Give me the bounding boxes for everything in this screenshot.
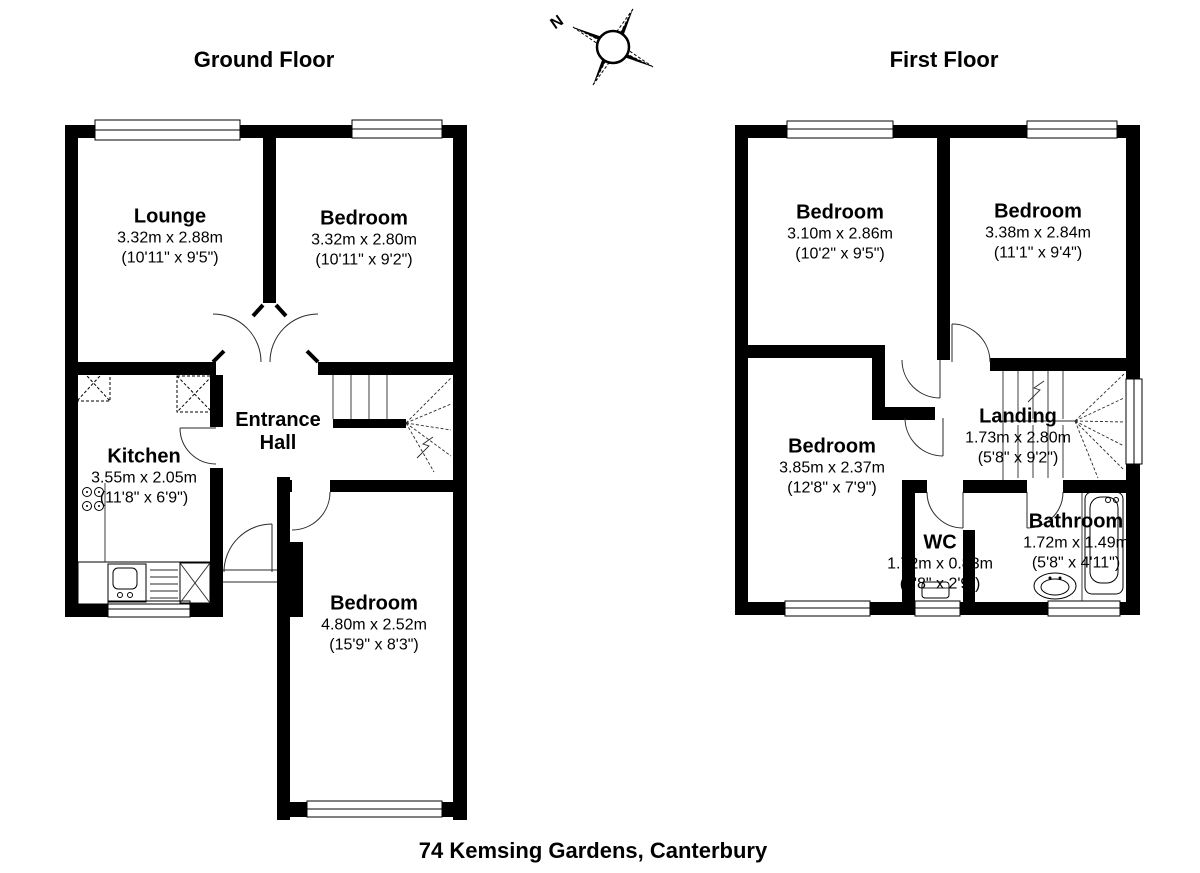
property-address: 74 Kemsing Gardens, Canterbury (419, 838, 767, 864)
ground-floor-title: Ground Floor (194, 47, 335, 73)
room-label-entrance-hall: Entrance Hall (228, 409, 328, 455)
kitchen-sink (108, 564, 146, 602)
room-label-kitchen: Kitchen 3.55m x 2.05m (11'8" x 6'9") (91, 446, 197, 509)
stairs-up-arrow (417, 437, 433, 458)
right-bedroom-window (1027, 121, 1117, 138)
kitchen-window (108, 601, 190, 617)
back-bedroom-window (785, 601, 870, 616)
room-label-bedroom-back: Bedroom 3.85m x 2.37m (12'8" x 7'9") (779, 436, 885, 499)
compass-rose: N (548, 9, 653, 85)
room-label-bedroom-left: Bedroom 3.10m x 2.86m (10'2" x 9'5") (787, 202, 893, 265)
kitchen-appliance-right (177, 376, 212, 412)
first-floor-title: First Floor (890, 47, 999, 73)
room-label-wc: WC 1.72m x 0.83m (5'8" x 2'9") (887, 532, 993, 595)
room-label-bedroom-rear: Bedroom 4.80m x 2.52m (15'9" x 8'3") (321, 593, 427, 656)
room-label-bathroom: Bathroom 1.72m x 1.49m (5'8" x 4'11") (1023, 511, 1129, 574)
room-label-landing: Landing 1.73m x 2.80m (5'8" x 9'2") (965, 406, 1071, 469)
bathroom-window (1048, 601, 1120, 616)
room-label-bedroom-front: Bedroom 3.32m x 2.80m (10'11" x 9'2") (311, 208, 417, 271)
room-label-bedroom-right: Bedroom 3.38m x 2.84m (11'1" x 9'4") (985, 201, 1091, 264)
left-bedroom-window (787, 121, 893, 138)
room-label-lounge: Lounge 3.32m x 2.88m (10'11" x 9'5") (117, 206, 223, 269)
stairs-up-arrow (1028, 381, 1044, 402)
floorplan-page: N Ground Floor First Floor Lounge 3.32m … (0, 0, 1200, 873)
lounge-window (95, 120, 240, 140)
landing-window (1126, 379, 1142, 464)
rear-bedroom-window (307, 801, 442, 817)
compass-north-label: N (548, 12, 567, 33)
basin (1034, 573, 1076, 599)
wc-window (915, 601, 960, 616)
front-bedroom-window (352, 120, 442, 138)
compass-circle (597, 31, 629, 63)
kitchen-unit (180, 563, 210, 603)
kitchen-drainer (150, 570, 178, 598)
kitchen-counter (78, 562, 210, 604)
